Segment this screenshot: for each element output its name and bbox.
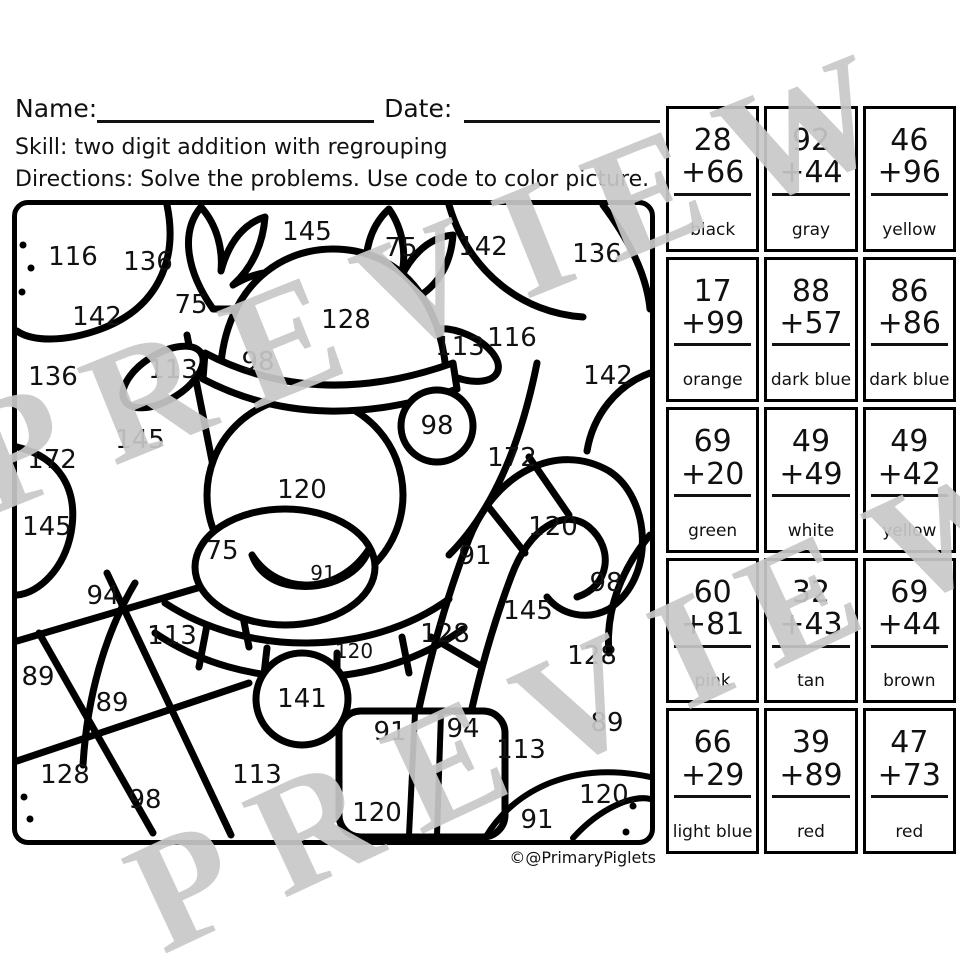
- key-cell-top-addend: 88: [792, 276, 830, 308]
- region-number: 128: [420, 621, 470, 647]
- key-cell-bottom-addend: +96: [871, 157, 948, 195]
- key-cell-top-addend: 69: [694, 426, 732, 458]
- key-cell: 32+43tan: [764, 558, 857, 704]
- region-number: 113: [496, 737, 546, 763]
- region-number: 89: [590, 710, 623, 736]
- key-cell-color-label: brown: [883, 671, 936, 691]
- region-number: 145: [115, 427, 165, 453]
- key-cell-bottom-addend: +49: [772, 459, 849, 497]
- region-number: 145: [22, 514, 72, 540]
- key-cell: 49+42yellow: [863, 407, 956, 553]
- key-cell-bottom-addend: +73: [871, 760, 948, 798]
- key-cell: 47+73red: [863, 708, 956, 854]
- key-cell-bottom-addend: +44: [772, 157, 849, 195]
- key-cell-color-label: dark blue: [771, 370, 851, 390]
- region-number: 142: [458, 234, 508, 260]
- region-number: 98: [589, 570, 622, 596]
- key-cell-color-label: gray: [792, 220, 830, 240]
- region-number: 116: [487, 325, 537, 351]
- region-number: 128: [567, 643, 617, 669]
- region-numbers-layer: 1161361457514213614275128116113136113981…: [17, 205, 650, 840]
- region-number: 91: [373, 719, 406, 745]
- region-number: 98: [420, 413, 453, 439]
- key-cell-bottom-addend: +99: [674, 308, 751, 346]
- date-label: Date:: [384, 94, 452, 123]
- region-number: 145: [503, 598, 553, 624]
- key-cell-top-addend: 28: [694, 125, 732, 157]
- key-cell-color-label: light blue: [673, 822, 753, 842]
- key-cell-top-addend: 39: [792, 727, 830, 759]
- key-cell: 49+49white: [764, 407, 857, 553]
- region-number: 75: [205, 538, 238, 564]
- region-number: 98: [128, 787, 161, 813]
- name-blank-line: [97, 98, 374, 123]
- region-number: 128: [321, 307, 371, 333]
- key-cell-color-label: red: [797, 822, 825, 842]
- key-cell-bottom-addend: +89: [772, 760, 849, 798]
- region-number: 120: [352, 800, 402, 826]
- key-cell-top-addend: 49: [792, 426, 830, 458]
- date-blank-line: [464, 98, 660, 123]
- key-cell-top-addend: 66: [694, 727, 732, 759]
- region-number: 172: [487, 445, 537, 471]
- key-cell-color-label: dark blue: [869, 370, 949, 390]
- coloring-picture: 1161361457514213614275128116113136113981…: [12, 200, 655, 845]
- key-cell-color-label: black: [690, 220, 735, 240]
- key-cell-color-label: yellow: [882, 220, 936, 240]
- region-number: 75: [384, 235, 417, 261]
- key-cell: 86+86dark blue: [863, 257, 956, 403]
- key-cell: 69+44brown: [863, 558, 956, 704]
- key-cell-color-label: orange: [683, 370, 743, 390]
- key-cell-bottom-addend: +66: [674, 157, 751, 195]
- region-number: 142: [583, 363, 633, 389]
- region-number: 141: [277, 686, 327, 712]
- region-number: 120.: [579, 782, 637, 808]
- region-number: 116: [48, 244, 98, 270]
- key-cell: 39+89red: [764, 708, 857, 854]
- key-cell-top-addend: 92: [792, 125, 830, 157]
- credit-text: ©@PrimaryPiglets: [400, 848, 656, 867]
- key-cell-top-addend: 69: [890, 577, 928, 609]
- region-number: 136: [123, 249, 173, 275]
- region-number: 113: [148, 357, 198, 383]
- key-cell-color-label: pink: [695, 671, 731, 691]
- region-number: 120: [335, 641, 373, 661]
- key-cell-top-addend: 60: [694, 577, 732, 609]
- key-cell-bottom-addend: +44: [871, 609, 948, 647]
- key-cell-top-addend: 47: [890, 727, 928, 759]
- key-cell: 88+57dark blue: [764, 257, 857, 403]
- region-number: 94: [86, 583, 119, 609]
- key-cell-color-label: green: [688, 521, 737, 541]
- region-number: 89: [21, 664, 54, 690]
- key-cell: 60+81pink: [666, 558, 759, 704]
- key-cell: 28+66black: [666, 106, 759, 252]
- directions-text: Directions: Solve the problems. Use code…: [15, 167, 649, 192]
- region-number: 120: [528, 514, 578, 540]
- key-cell-top-addend: 49: [890, 426, 928, 458]
- region-number: 91: [520, 807, 553, 833]
- region-number: 94: [446, 716, 479, 742]
- region-number: 91: [310, 563, 335, 583]
- skill-text: Skill: two digit addition with regroupin…: [15, 135, 448, 160]
- key-cell: 66+29light blue: [666, 708, 759, 854]
- region-number: 172: [27, 447, 77, 473]
- key-cell-bottom-addend: +57: [772, 308, 849, 346]
- region-number: 75: [174, 292, 207, 318]
- region-number: 113: [435, 334, 485, 360]
- key-cell-color-label: tan: [797, 671, 825, 691]
- key-cell-color-label: red: [895, 822, 923, 842]
- key-cell-bottom-addend: +86: [871, 308, 948, 346]
- region-number: 145: [282, 219, 332, 245]
- region-number: 113: [147, 623, 197, 649]
- name-label: Name:: [15, 94, 97, 123]
- key-cell-bottom-addend: +29: [674, 760, 751, 798]
- region-number: 91: [458, 543, 491, 569]
- region-number: 98: [241, 349, 274, 375]
- name-date-row: Name: Date:: [15, 94, 660, 123]
- region-number: 136: [572, 241, 622, 267]
- key-cell-top-addend: 86: [890, 276, 928, 308]
- worksheet-page: Name: Date: Skill: two digit addition wi…: [0, 0, 960, 960]
- key-cell: 69+20green: [666, 407, 759, 553]
- key-cell-bottom-addend: +42: [871, 459, 948, 497]
- key-cell-color-label: white: [788, 521, 835, 541]
- key-cell-top-addend: 17: [694, 276, 732, 308]
- color-key-grid: 28+66black92+44gray46+96yellow17+99orang…: [666, 106, 956, 854]
- key-cell-bottom-addend: +20: [674, 459, 751, 497]
- region-number: 113: [232, 762, 282, 788]
- key-cell-bottom-addend: +81: [674, 609, 751, 647]
- key-cell: 92+44gray: [764, 106, 857, 252]
- region-number: 128: [40, 762, 90, 788]
- key-cell: 46+96yellow: [863, 106, 956, 252]
- region-number: 142: [72, 304, 122, 330]
- key-cell: 17+99orange: [666, 257, 759, 403]
- key-cell-top-addend: 46: [890, 125, 928, 157]
- key-cell-bottom-addend: +43: [772, 609, 849, 647]
- key-cell-top-addend: 32: [792, 577, 830, 609]
- key-cell-color-label: yellow: [882, 521, 936, 541]
- region-number: 120: [277, 477, 327, 503]
- region-number: 89: [95, 690, 128, 716]
- region-number: 136: [28, 364, 78, 390]
